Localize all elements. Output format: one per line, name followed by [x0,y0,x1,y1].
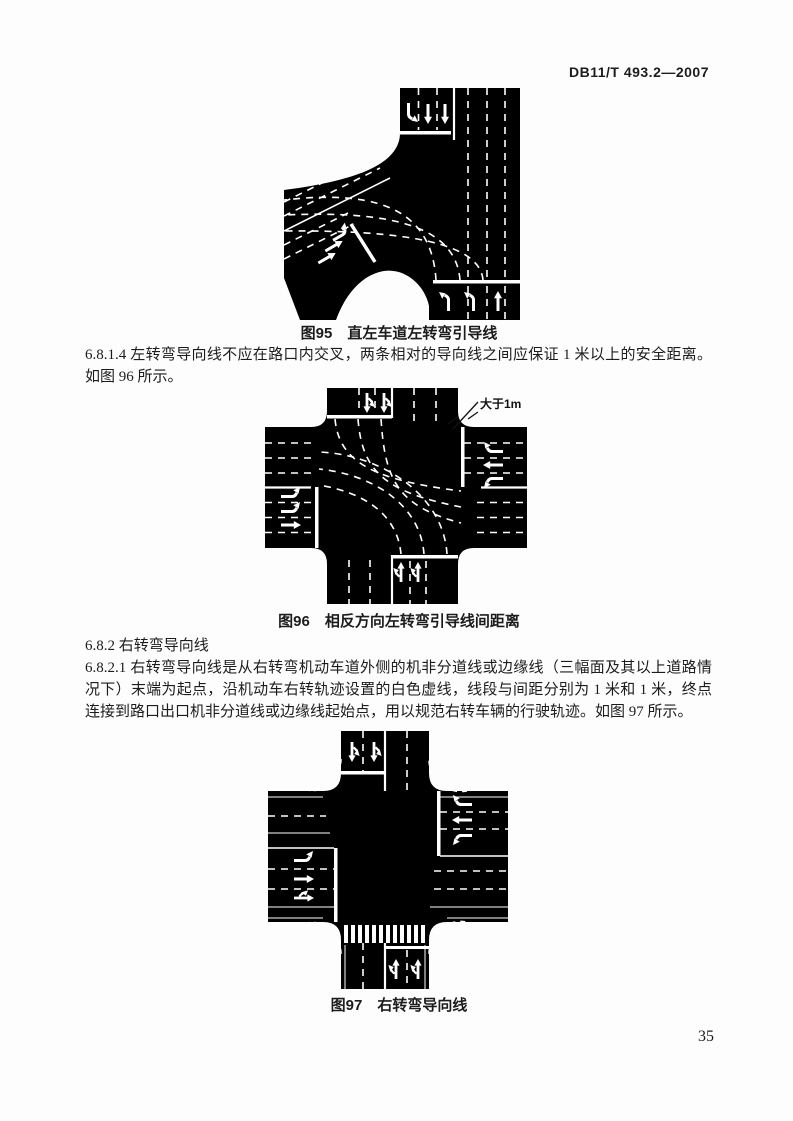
fig97-road-svg [268,731,508,989]
figure-96-diagram: 大于1m [265,388,527,604]
figure-97-diagram [268,731,508,989]
fig96-road-svg: 大于1m [265,388,527,604]
paragraph-6-8-1-4: 6.8.1.4 左转弯导向线不应在路口内交叉，两条相对的导向线之间应保证 1 米… [85,344,712,388]
page-number: 35 [698,1028,714,1046]
fig96-gap-label: 大于1m [480,396,521,411]
doc-number: DB11/T 493.2—2007 [569,64,709,80]
document-page: DB11/T 493.2—2007 [0,0,793,1121]
fig95-road-svg [284,88,520,320]
figure-95-caption: 图95 直左车道左转弯引导线 [85,322,713,343]
figure-96-caption: 图96 相反方向左转弯引导线间距离 [85,610,713,631]
heading-6-8-2: 6.8.2 右转弯导向线 [85,634,209,655]
paragraph-6-8-2-1: 6.8.2.1 右转弯导向线是从右转弯机动车道外侧的机非分道线或边缘线（三幅面及… [85,657,712,723]
figure-97-caption: 图97 右转弯导向线 [85,994,713,1015]
figure-95-diagram [284,88,520,320]
